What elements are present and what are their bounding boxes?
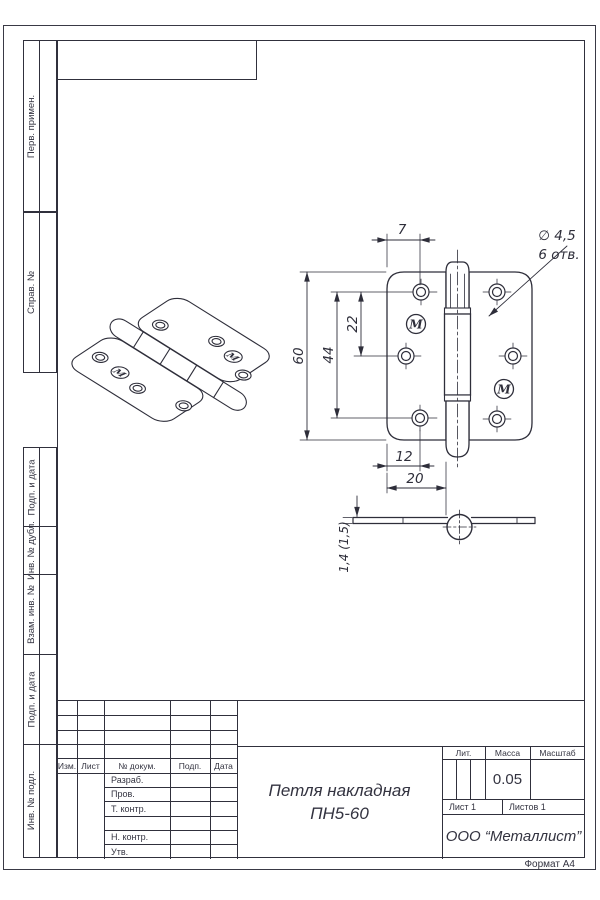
tb-title: Петля накладная ПН5-60: [237, 746, 442, 859]
tb-role-utv: Утв.: [104, 844, 170, 859]
front-logo-letter: М: [496, 383, 511, 397]
isometric-view: М М: [65, 264, 279, 459]
edge-view: 1,4 (1,5): [337, 496, 535, 573]
front-logo-letter: М: [408, 318, 423, 332]
tb-title-line2: ПН5-60: [310, 803, 369, 826]
dim-top-offset: 7: [398, 222, 407, 238]
tb-role-razrab: Разраб.: [104, 773, 170, 787]
tb-title-line1: Петля накладная: [269, 780, 411, 803]
dim-thickness: 1,4 (1,5): [337, 521, 351, 572]
tb-sheet: Лист 1: [442, 799, 502, 814]
dim-hole-count: 6 отв.: [538, 247, 579, 263]
drawing-page: Перв. примен. Справ. № Подп. и дата Инв.…: [0, 0, 600, 900]
tb-header-list: Лист: [77, 758, 104, 773]
dim-bottom-offset: 12: [395, 449, 412, 465]
tb-header-izm: Изм.: [57, 758, 77, 773]
tb-mass-label: Масса: [485, 746, 530, 759]
dim-span-outer: 44: [321, 346, 337, 363]
format-label: Формат А4: [462, 859, 580, 870]
tb-sheets: Листов 1: [502, 799, 585, 814]
tb-header-doc: № докум.: [104, 758, 170, 773]
tb-lit-label: Лит.: [442, 746, 485, 759]
tb-header-podp: Подп.: [170, 758, 210, 773]
title-block: Изм. Лист № докум. Подп. Дата Разраб. Пр…: [57, 700, 585, 858]
tb-header-data: Дата: [210, 758, 237, 773]
tb-scale-label: Масштаб: [530, 746, 585, 759]
tb-role-tkontr: Т. контр.: [104, 801, 170, 816]
tb-company: ООО “Металлист”: [442, 814, 585, 859]
tb-role-nkontr: Н. контр.: [104, 830, 170, 844]
dim-span-inner: 22: [345, 315, 361, 332]
tb-role-prov: Пров.: [104, 787, 170, 801]
front-view: М М 60 44 22 7 ∅ 4,5 6 отв.: [291, 222, 580, 515]
dim-hole-dia: ∅ 4,5: [538, 228, 576, 244]
dim-leaf-width: 20: [406, 471, 423, 487]
dim-height: 60: [291, 347, 307, 364]
tb-mass-value: 0.05: [485, 759, 530, 799]
